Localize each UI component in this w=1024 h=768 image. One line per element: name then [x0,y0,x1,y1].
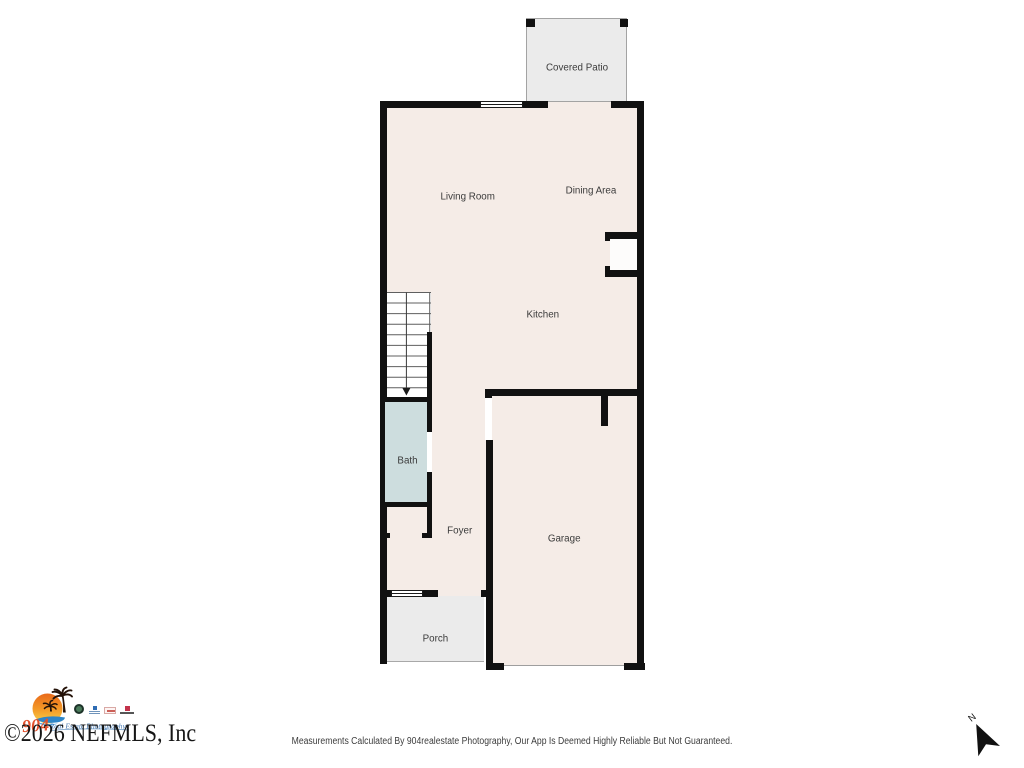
svg-text:N: N [966,712,978,725]
